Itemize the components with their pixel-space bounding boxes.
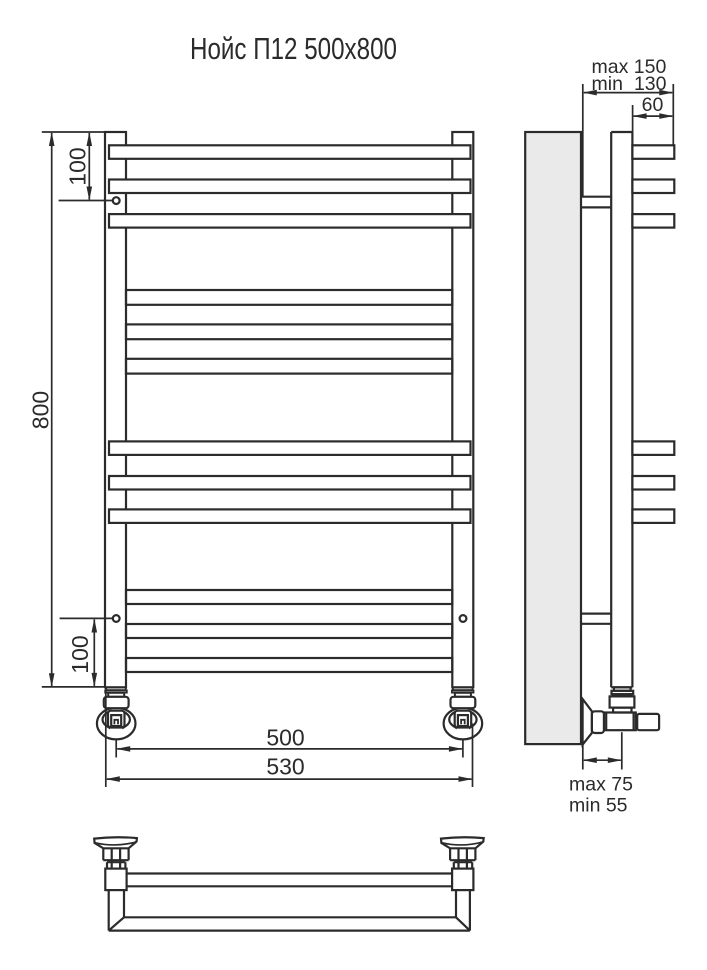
svg-text:800: 800 bbox=[27, 391, 53, 429]
svg-text:100: 100 bbox=[64, 147, 90, 185]
svg-text:60: 60 bbox=[642, 94, 664, 116]
svg-text:min 55: min 55 bbox=[569, 795, 628, 817]
svg-text:Нойс П12 500x800: Нойс П12 500x800 bbox=[190, 31, 397, 66]
svg-text:530: 530 bbox=[266, 754, 304, 780]
svg-text:100: 100 bbox=[67, 635, 93, 673]
svg-text:max 75: max 75 bbox=[569, 774, 633, 796]
svg-text:500: 500 bbox=[266, 724, 304, 750]
